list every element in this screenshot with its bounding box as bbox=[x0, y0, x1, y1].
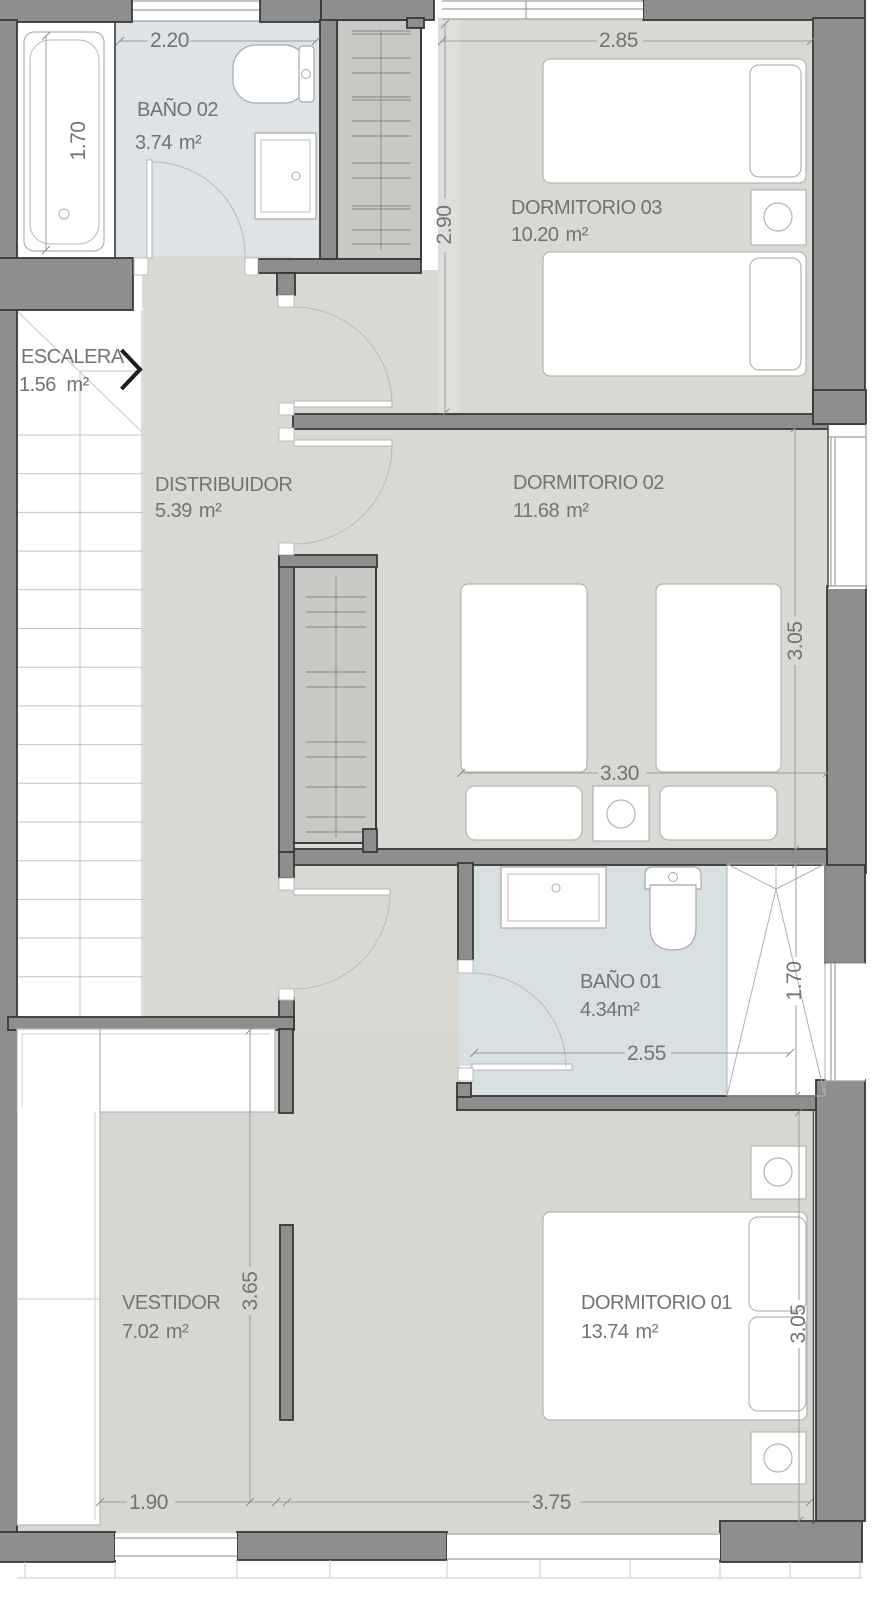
svg-text:2.20: 2.20 bbox=[150, 29, 189, 52]
svg-text:DORMITORIO 01: DORMITORIO 01 bbox=[581, 1292, 732, 1314]
svg-text:4.34m²: 4.34m² bbox=[580, 999, 640, 1021]
svg-text:1.70: 1.70 bbox=[67, 122, 90, 161]
svg-text:DORMITORIO 03: DORMITORIO 03 bbox=[511, 197, 662, 219]
svg-text:VESTIDOR: VESTIDOR bbox=[122, 1292, 220, 1314]
svg-text:DORMITORIO 02: DORMITORIO 02 bbox=[513, 472, 664, 494]
svg-text:3.65: 3.65 bbox=[239, 1272, 262, 1311]
svg-text:3.74 m²: 3.74 m² bbox=[135, 132, 202, 154]
svg-text:3.30: 3.30 bbox=[600, 762, 639, 785]
svg-text:1.90: 1.90 bbox=[129, 1491, 168, 1514]
svg-text:ESCALERA: ESCALERA bbox=[21, 346, 125, 368]
svg-text:1.70: 1.70 bbox=[783, 962, 806, 1001]
svg-text:10.20 m²: 10.20 m² bbox=[511, 224, 589, 246]
svg-text:1.56 m²: 1.56 m² bbox=[19, 374, 90, 396]
svg-text:3.05: 3.05 bbox=[787, 1305, 810, 1344]
svg-text:13.74 m²: 13.74 m² bbox=[581, 1321, 659, 1343]
svg-text:DISTRIBUIDOR: DISTRIBUIDOR bbox=[155, 474, 292, 496]
svg-text:5.39 m²: 5.39 m² bbox=[155, 500, 222, 522]
svg-text:2.90: 2.90 bbox=[433, 206, 456, 245]
svg-text:2.85: 2.85 bbox=[599, 29, 638, 52]
svg-text:BAÑO 01: BAÑO 01 bbox=[580, 969, 661, 993]
svg-text:3.75: 3.75 bbox=[532, 1491, 571, 1514]
svg-text:7.02 m²: 7.02 m² bbox=[122, 1321, 189, 1343]
svg-text:BAÑO 02: BAÑO 02 bbox=[137, 97, 218, 121]
svg-text:2.55: 2.55 bbox=[627, 1042, 666, 1065]
svg-text:3.05: 3.05 bbox=[784, 622, 807, 661]
svg-text:11.68 m²: 11.68 m² bbox=[513, 500, 589, 522]
